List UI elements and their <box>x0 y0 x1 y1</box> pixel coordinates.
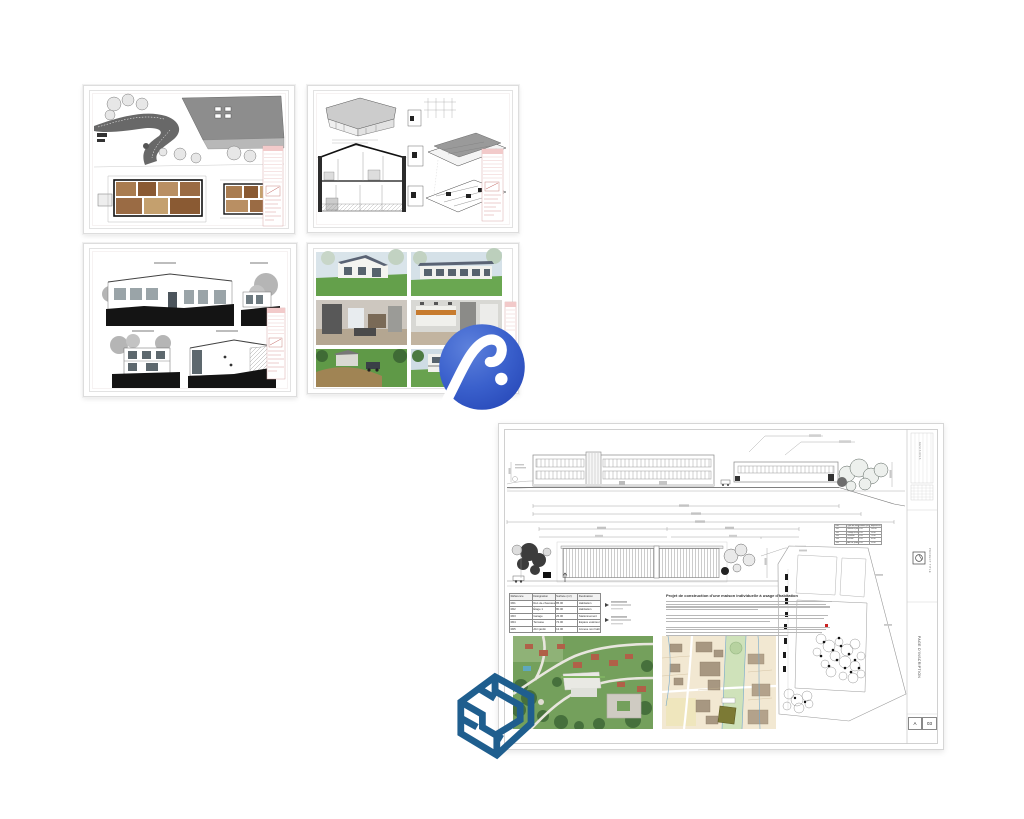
elevations-drawing <box>84 244 296 396</box>
project-description: Projet de construction d'une maison indi… <box>666 594 832 638</box>
strip-revisions-label: REVISIONS <box>918 442 921 460</box>
legend <box>605 601 631 624</box>
thumbnail-site-plan-sheet <box>83 85 295 234</box>
strip-project-label: PROJECT TITLE <box>928 548 931 573</box>
project-description-title: Projet de construction d'une maison indi… <box>666 594 832 598</box>
strip-index-cell: A <box>908 717 922 730</box>
front-elevation <box>507 434 905 524</box>
location-map <box>662 636 776 729</box>
title-block <box>482 149 503 221</box>
construction-permit-sheet: RéférenceDésignationSurface (m²)Destinat… <box>498 423 944 750</box>
thumbnail-elevations-sheet <box>83 243 297 397</box>
site-plan-drawing <box>84 86 294 233</box>
volume-table: Réf.Type de volumeSurface (m²)Emprise au… <box>834 524 882 545</box>
archicad-logo-icon <box>436 321 528 413</box>
room-table: RéférenceDésignationSurface (m²)Destinat… <box>509 593 601 633</box>
title-block <box>267 308 285 379</box>
section-axonometry-drawing <box>308 86 518 232</box>
collage: RéférenceDésignationSurface (m²)Destinat… <box>0 0 1024 819</box>
sketchup-logo-icon <box>450 670 540 768</box>
thumbnail-section-axonometry-sheet <box>307 85 519 233</box>
title-strip-graphics <box>907 433 937 714</box>
strip-sheet-label: PAGE D'INSCRIPTION <box>917 636 921 678</box>
title-block <box>263 146 283 226</box>
strip-number-cell: 03 <box>922 717 937 730</box>
description-marker <box>825 624 828 627</box>
